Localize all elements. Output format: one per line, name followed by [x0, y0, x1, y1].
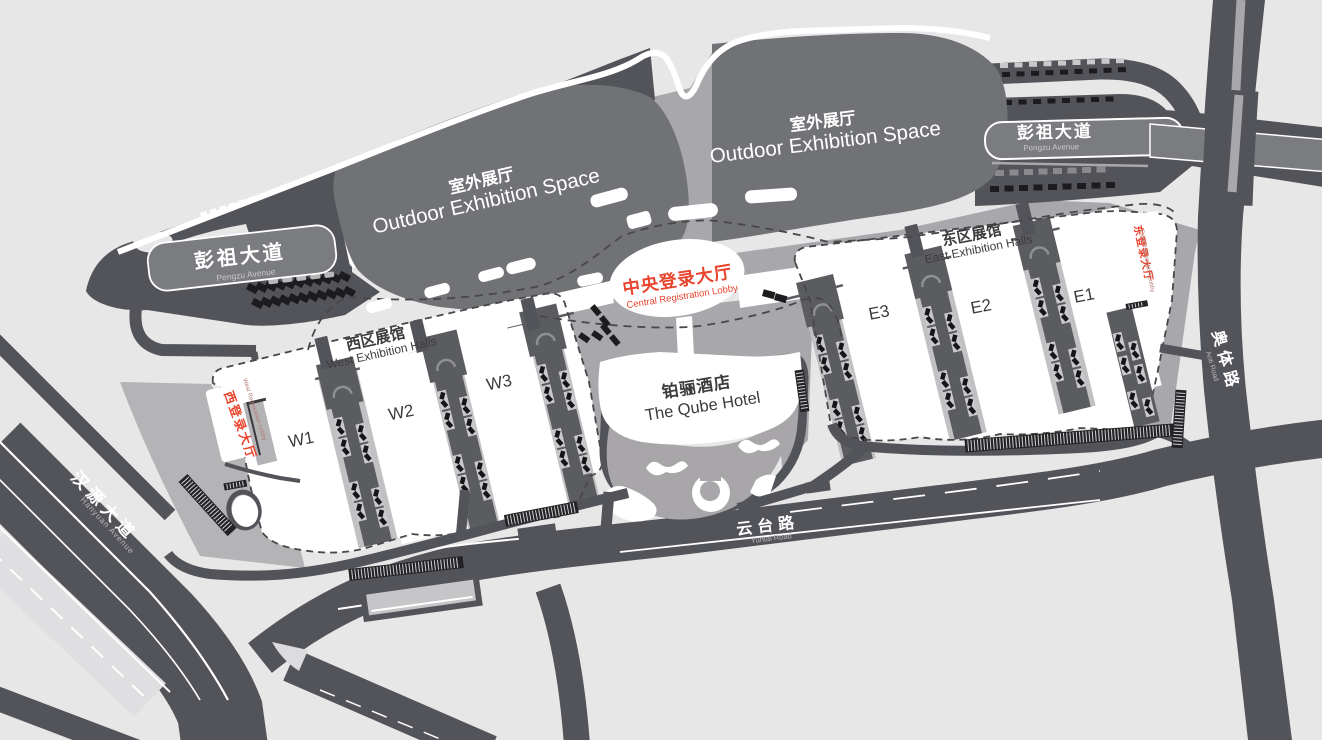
svg-text:Pengzu Avenue: Pengzu Avenue: [1023, 142, 1080, 152]
svg-text:彭祖大道: 彭祖大道: [1017, 121, 1093, 143]
svg-text:E2: E2: [969, 295, 993, 318]
svg-text:E3: E3: [867, 301, 891, 324]
svg-text:E1: E1: [1072, 284, 1096, 307]
